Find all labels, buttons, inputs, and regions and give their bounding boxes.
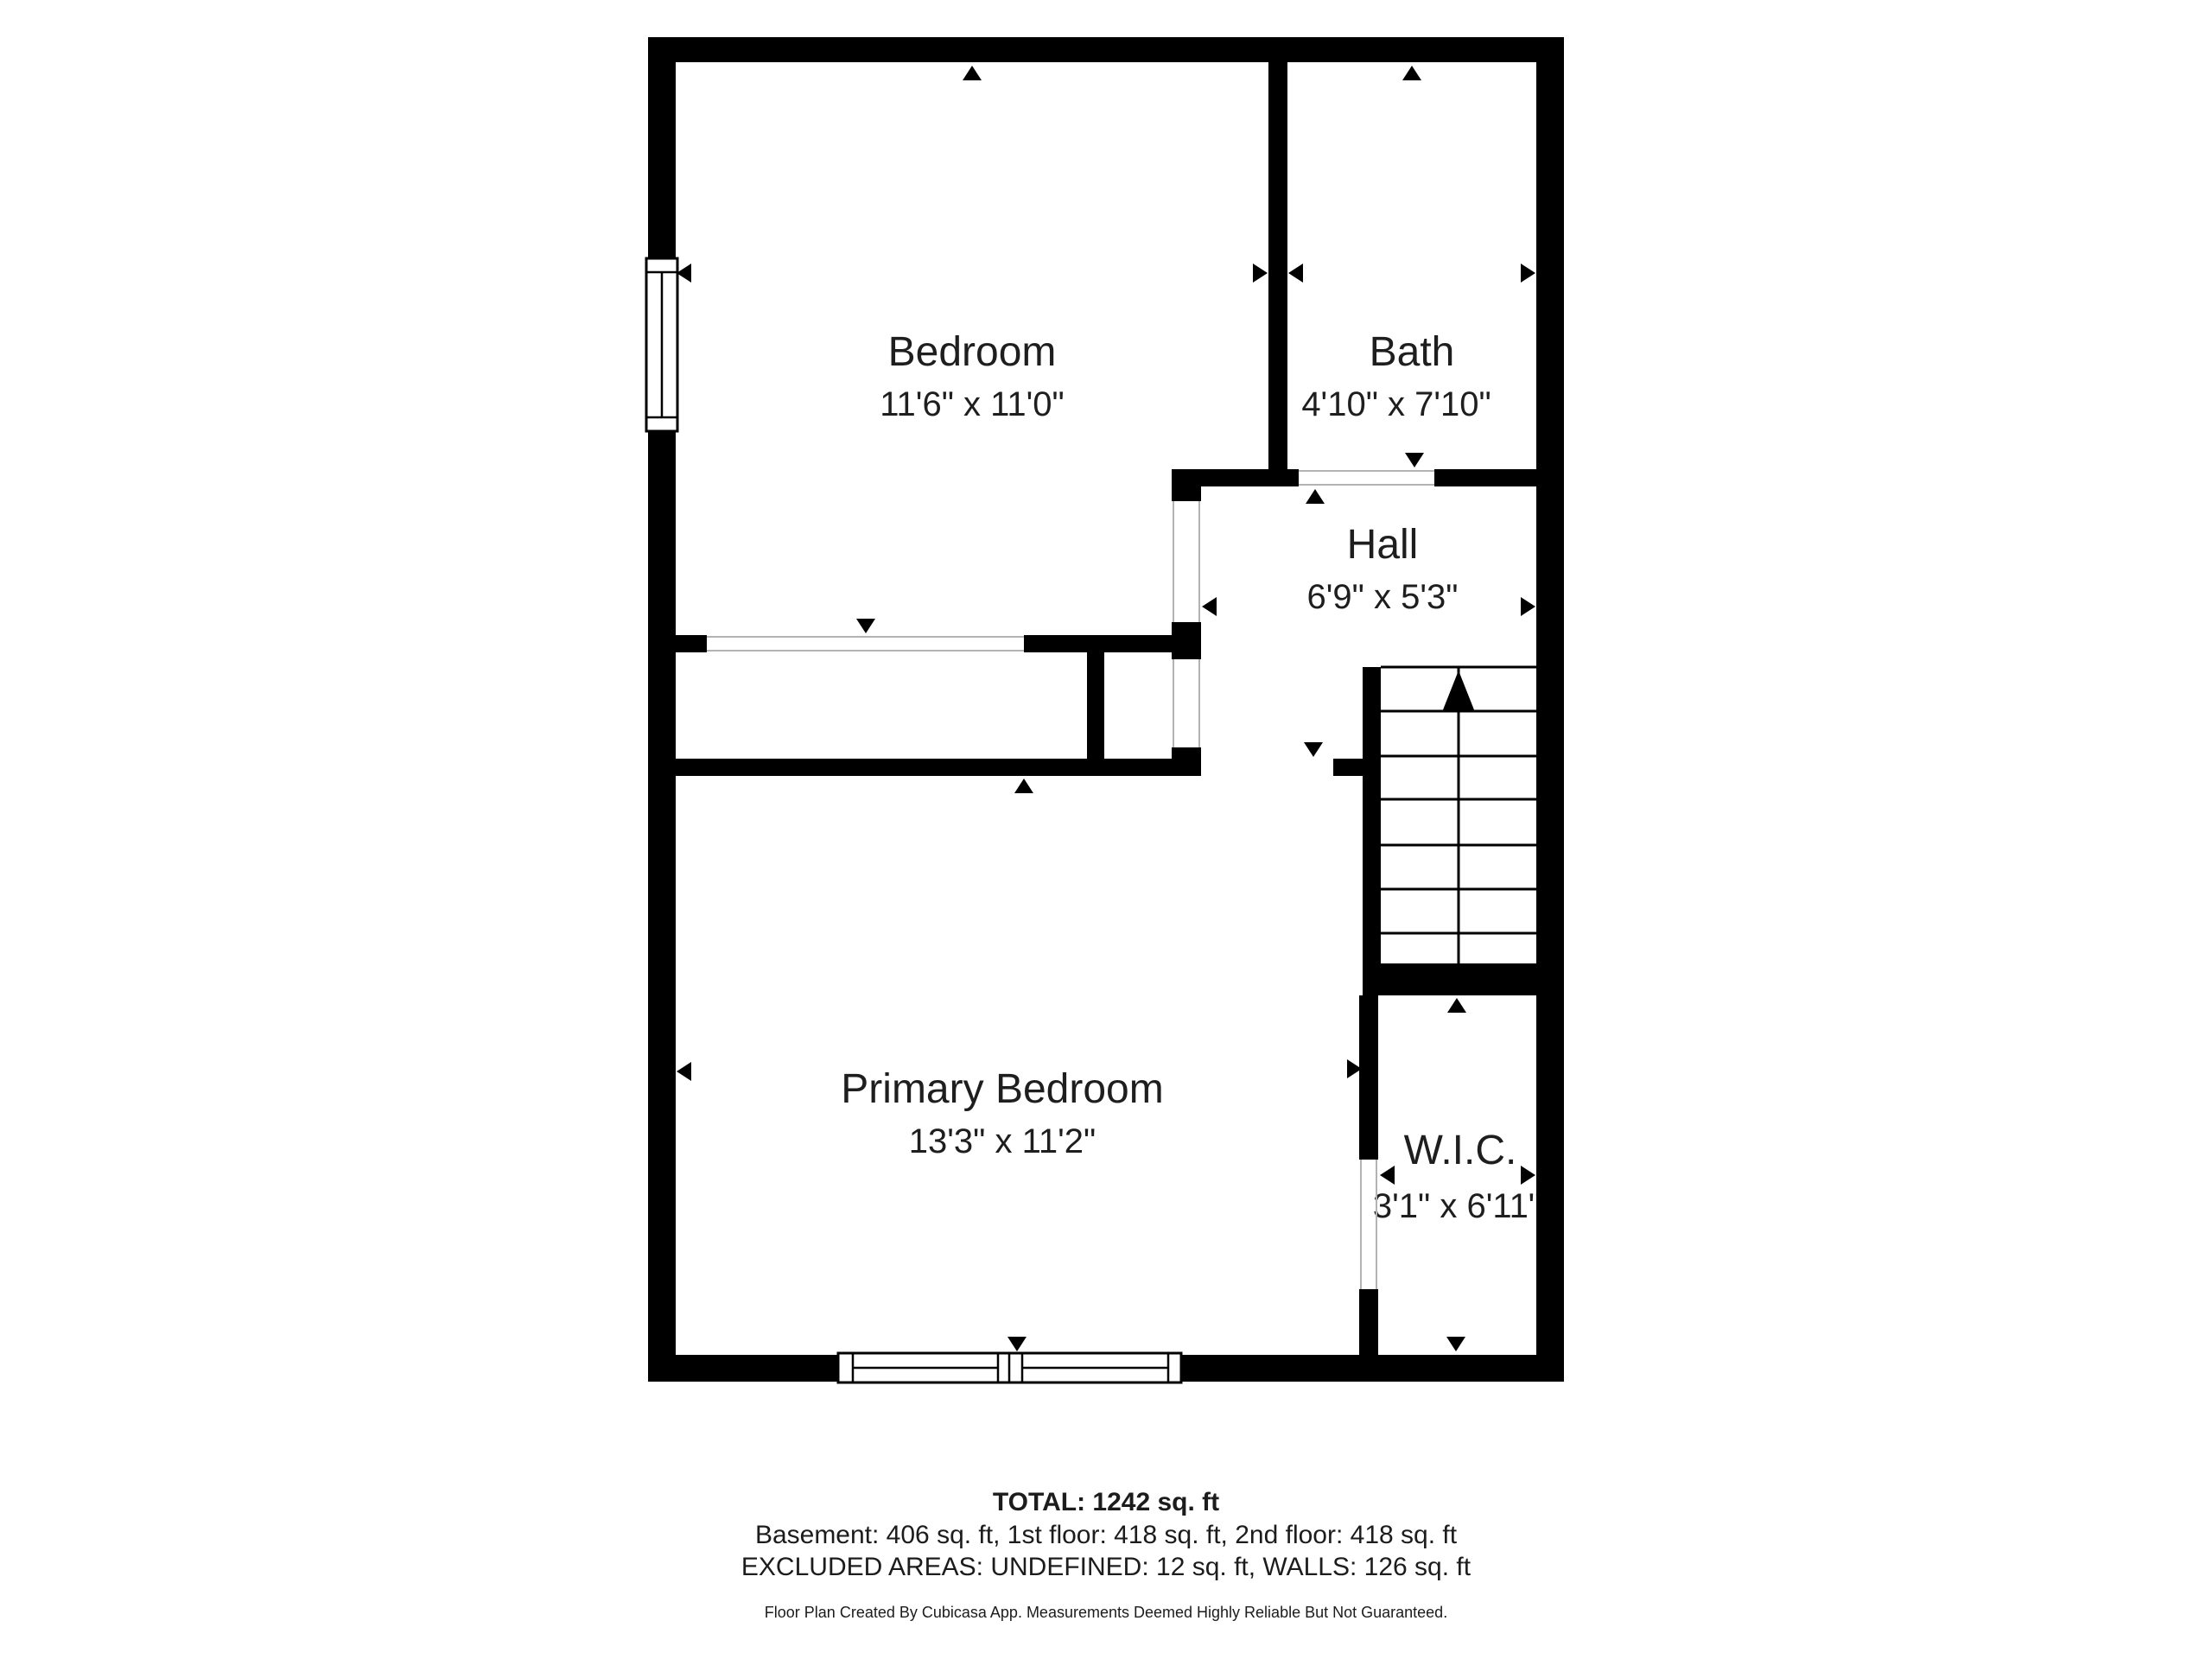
room-dims-bedroom: 11'6" x 11'0" xyxy=(880,385,1064,423)
floorplan-page: Bedroom 11'6" x 11'0" Bath 4'10" x 7'10"… xyxy=(0,0,2212,1659)
wall-outer-top xyxy=(648,37,1564,62)
arrow-up-icon xyxy=(1014,779,1033,793)
arrow-right-icon xyxy=(1521,264,1535,283)
arrow-left-icon xyxy=(677,264,691,283)
arrow-right-icon xyxy=(1253,264,1268,283)
arrow-down-icon xyxy=(1446,1337,1465,1351)
arrow-up-icon xyxy=(1402,66,1421,80)
wall-stairs-left xyxy=(1363,667,1381,995)
room-dims-hall: 6'9" x 5'3" xyxy=(1307,578,1459,616)
arrow-left-icon xyxy=(677,1062,691,1081)
room-label-hall: Hall xyxy=(1347,522,1419,568)
wall-outer-left xyxy=(648,37,676,1382)
summary-block: TOTAL: 1242 sq. ft Basement: 406 sq. ft,… xyxy=(741,1488,1471,1621)
windows xyxy=(646,258,1181,1382)
room-dims-bath: 4'10" x 7'10" xyxy=(1301,385,1491,423)
disclaimer-text: Floor Plan Created By Cubicasa App. Meas… xyxy=(765,1604,1447,1621)
wall-hall-left-upper xyxy=(1172,469,1201,501)
room-label-bedroom: Bedroom xyxy=(888,329,1057,375)
room-dims-wic: 3'1" x 6'11" xyxy=(1373,1187,1541,1225)
arrow-down-icon xyxy=(1007,1337,1027,1351)
arrow-right-icon xyxy=(1521,1166,1535,1185)
wall-primary-bedroom-top xyxy=(648,759,1201,776)
arrow-up-icon xyxy=(1447,998,1466,1013)
room-label-primary-bedroom: Primary Bedroom xyxy=(841,1066,1163,1112)
room-label-bath: Bath xyxy=(1370,329,1455,375)
wall-outer-right xyxy=(1536,37,1564,1382)
wall-stairwell-bottom xyxy=(1363,963,1564,995)
wall-wic-left-lower xyxy=(1359,1289,1378,1355)
wall-closet-divider xyxy=(1087,648,1104,760)
walls xyxy=(648,37,1564,1382)
wall-bedroom-bath-divider xyxy=(1268,37,1287,486)
arrow-down-icon xyxy=(1405,453,1424,467)
arrow-left-icon xyxy=(1288,264,1303,283)
total-area-text: TOTAL: 1242 sq. ft xyxy=(993,1488,1219,1516)
room-dims-primary-bedroom: 13'3" x 11'2" xyxy=(909,1122,1096,1160)
arrow-up-icon xyxy=(1306,489,1325,504)
arrow-left-icon xyxy=(1380,1166,1395,1185)
arrow-right-icon xyxy=(1521,597,1535,616)
arrow-left-icon xyxy=(1202,597,1217,616)
floorplan-drawing: Bedroom 11'6" x 11'0" Bath 4'10" x 7'10"… xyxy=(0,0,2212,1659)
room-label-wic: W.I.C. xyxy=(1404,1128,1517,1173)
arrow-up-icon xyxy=(963,66,982,80)
stairs-up-arrow-icon xyxy=(1442,671,1475,712)
wall-wic-left-upper xyxy=(1359,995,1378,1160)
wall-hall-left-middle xyxy=(1172,622,1201,659)
room-labels: Bedroom 11'6" x 11'0" Bath 4'10" x 7'10"… xyxy=(841,329,1541,1225)
arrow-down-icon xyxy=(856,619,875,633)
wall-bedroom-bottom-stub xyxy=(676,635,707,652)
arrow-down-icon xyxy=(1304,742,1323,757)
wall-bath-bottom-right xyxy=(1434,469,1536,486)
floor-areas-text: Basement: 406 sq. ft, 1st floor: 418 sq.… xyxy=(755,1521,1458,1549)
excluded-areas-text: EXCLUDED AREAS: UNDEFINED: 12 sq. ft, WA… xyxy=(741,1553,1471,1581)
stairs xyxy=(1381,667,1536,963)
